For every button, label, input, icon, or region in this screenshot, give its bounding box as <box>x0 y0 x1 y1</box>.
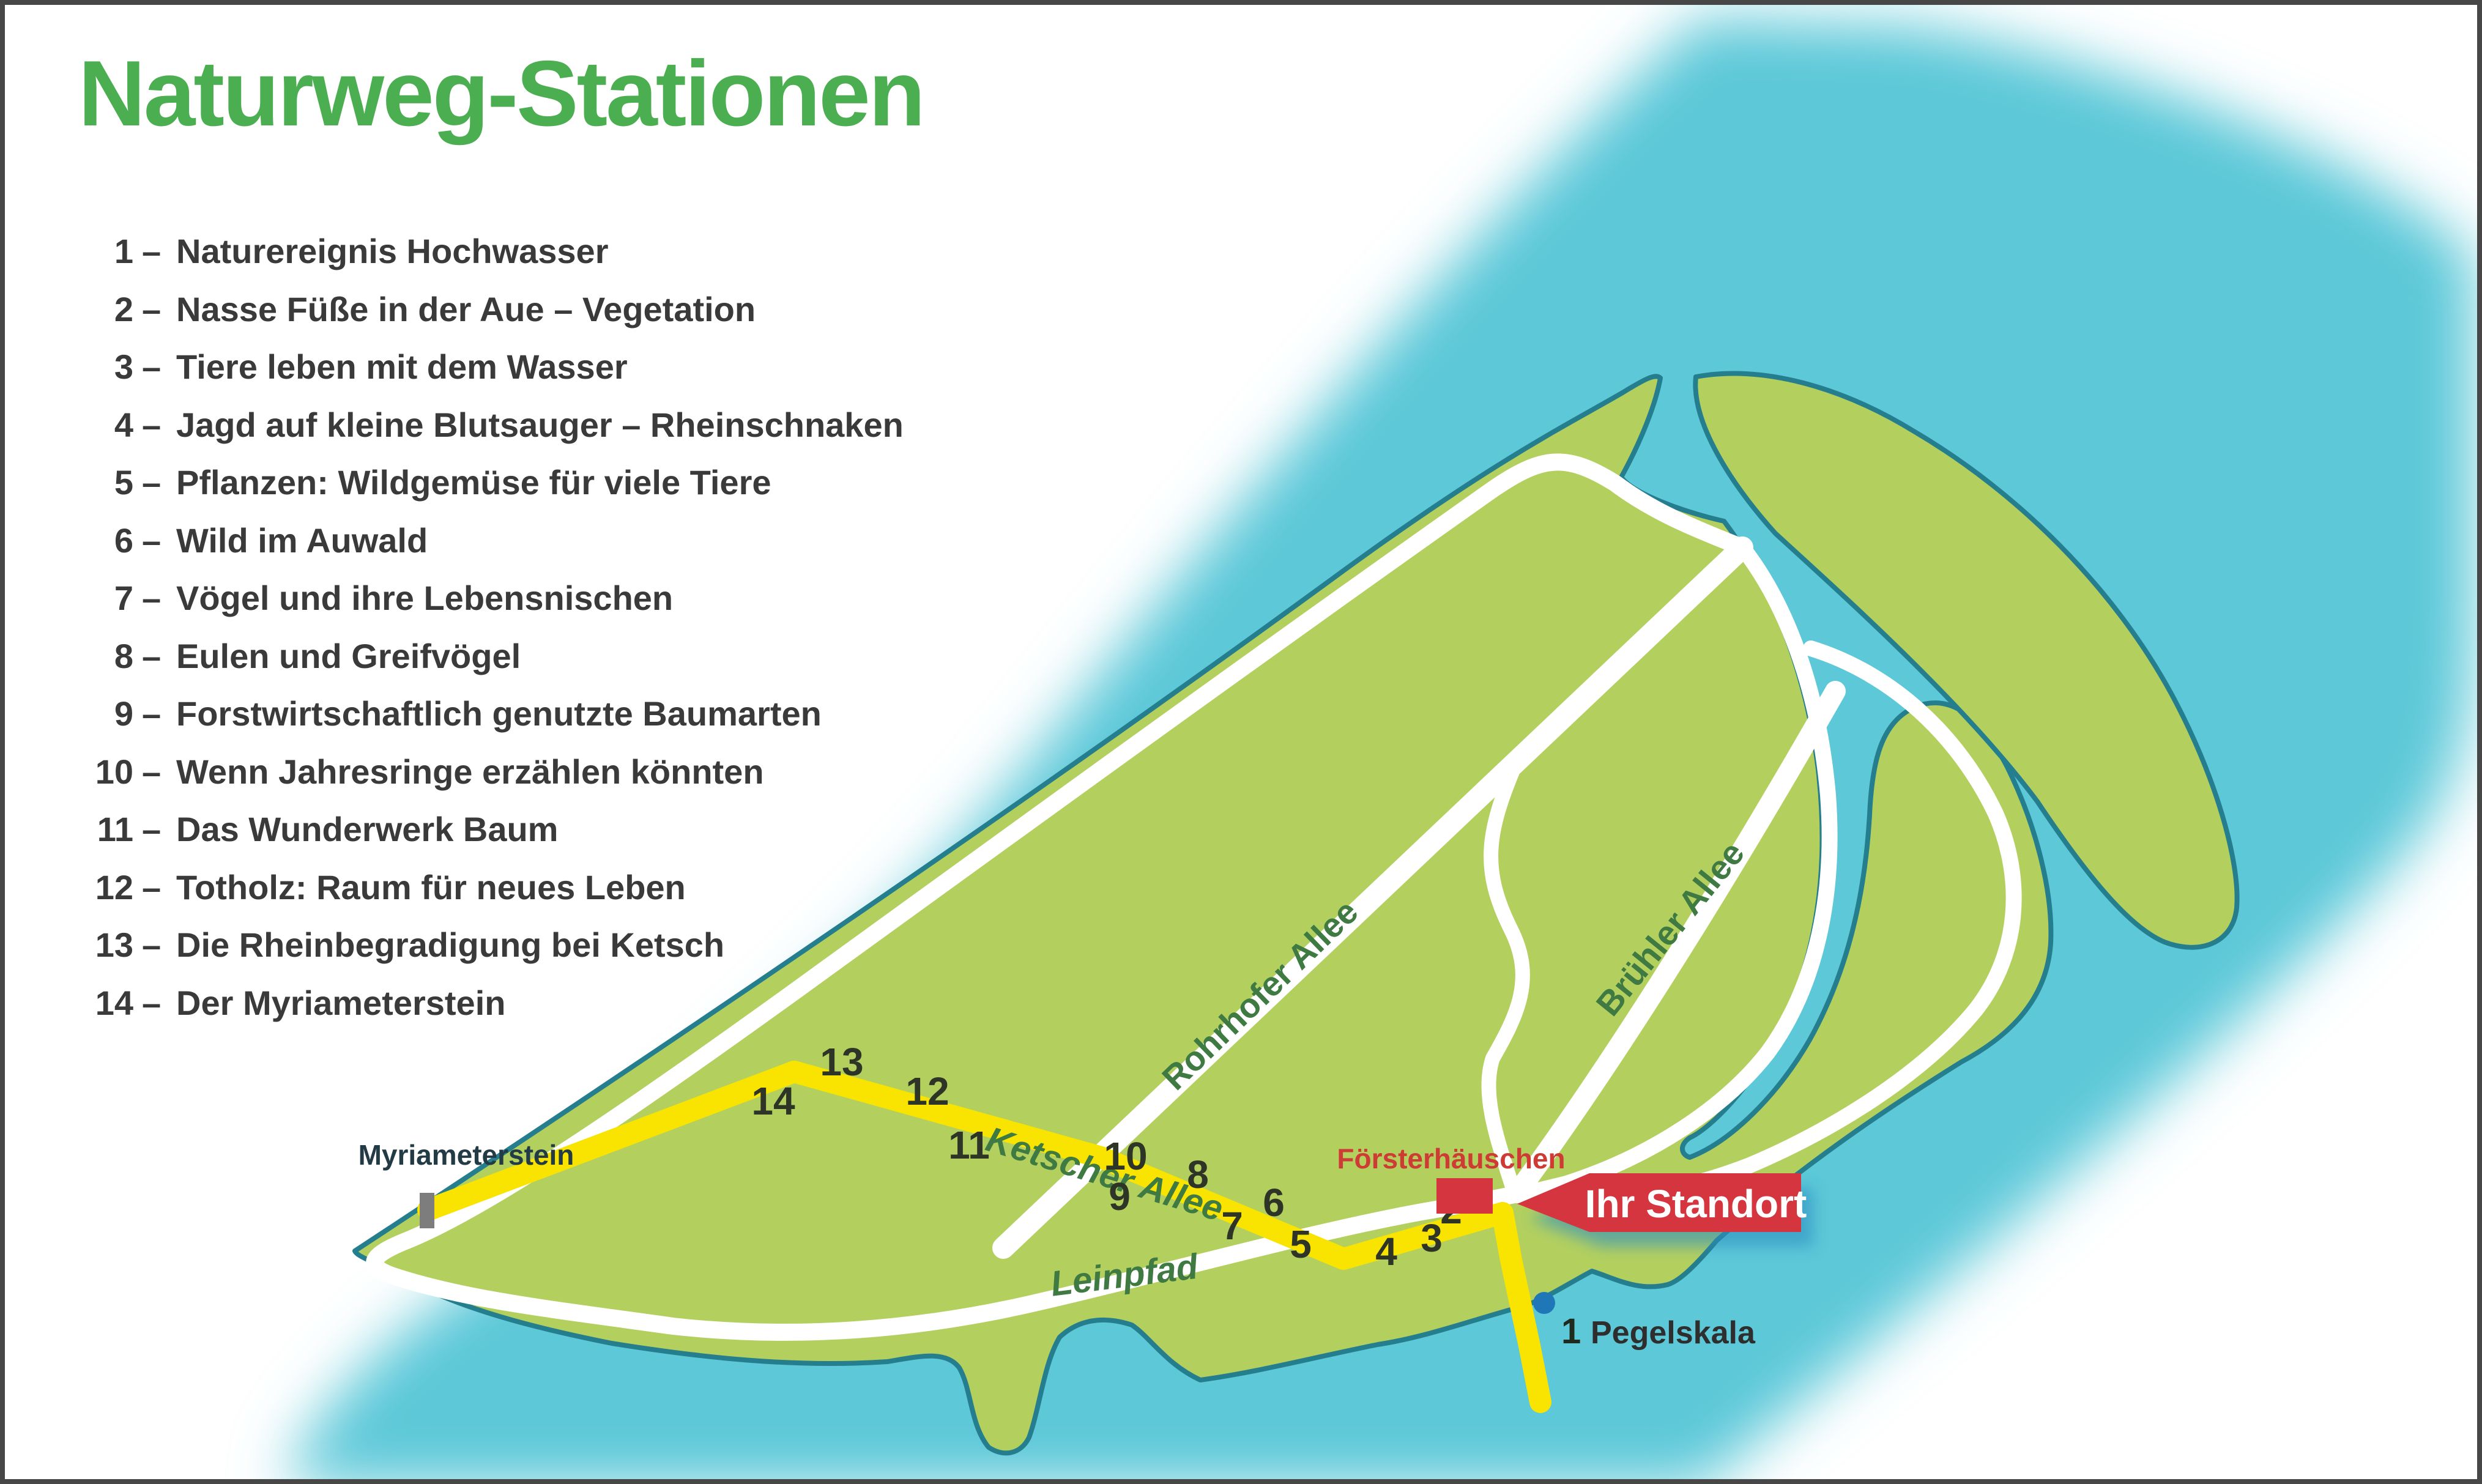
legend-dash-14: – <box>142 984 161 1022</box>
standort-banner-label: Ihr Standort <box>1585 1182 1807 1226</box>
station-4: 4 <box>1375 1230 1397 1274</box>
station-8: 8 <box>1187 1152 1209 1196</box>
legend-num-11: 11 <box>97 810 133 848</box>
station-3: 3 <box>1421 1216 1443 1260</box>
legend-dash-5: – <box>142 463 161 502</box>
legend-num-8: 8 <box>114 637 133 675</box>
legend-title-9: Forstwirtschaftlich genutzte Baumarten <box>176 694 822 733</box>
legend-dash-1: – <box>142 232 161 270</box>
legend-dash-6: – <box>142 521 161 560</box>
legend-dash-12: – <box>142 868 161 907</box>
trail-map-image: Myriameterstein Rohrhofer Allee Ketscher… <box>0 0 2482 1484</box>
legend-num-2: 2 <box>114 290 133 328</box>
legend-title-8: Eulen und Greifvögel <box>176 637 521 675</box>
station-14: 14 <box>751 1079 795 1123</box>
station-13: 13 <box>820 1040 863 1084</box>
legend-num-6: 6 <box>114 521 133 560</box>
legend-dash-2: – <box>142 290 161 328</box>
legend-title-14: Der Myriameterstein <box>176 984 505 1022</box>
legend-title-1: Naturereignis Hochwasser <box>176 232 608 270</box>
legend-num-13: 13 <box>95 926 133 964</box>
station-7: 7 <box>1221 1204 1243 1248</box>
station-5: 5 <box>1290 1222 1312 1266</box>
myriameterstein-marker <box>420 1193 434 1228</box>
legend-title-2: Nasse Füße in der Aue – Vegetation <box>176 290 756 328</box>
legend-dash-9: – <box>142 694 161 733</box>
legend-dash-4: – <box>142 406 161 444</box>
legend-dash-10: – <box>142 752 161 791</box>
legend-dash-8: – <box>142 637 161 675</box>
legend-dash-13: – <box>142 926 161 964</box>
legend-title-11: Das Wunderwerk Baum <box>176 810 558 848</box>
legend-title-5: Pflanzen: Wildgemüse für viele Tiere <box>176 463 771 502</box>
pegelskala-dot <box>1533 1292 1555 1314</box>
station-11: 11 <box>948 1123 990 1167</box>
legend-dash-11: – <box>142 810 161 848</box>
foersterhaeuschen-building <box>1436 1178 1493 1214</box>
legend-num-12: 12 <box>95 868 133 907</box>
legend-num-10: 10 <box>95 752 133 791</box>
page: Myriameterstein Rohrhofer Allee Ketscher… <box>0 0 2482 1484</box>
station-1: 1 <box>1561 1311 1581 1351</box>
legend-num-3: 3 <box>114 347 133 386</box>
legend-num-5: 5 <box>114 463 133 502</box>
legend-title-10: Wenn Jahresringe erzählen könnten <box>176 752 764 791</box>
legend-title-4: Jagd auf kleine Blutsauger – Rheinschnak… <box>176 406 904 444</box>
legend-num-14: 14 <box>95 984 133 1022</box>
legend-dash-3: – <box>142 347 161 386</box>
station-6: 6 <box>1263 1181 1285 1225</box>
foersterhaeuschen-label: Försterhäuschen <box>1337 1143 1565 1174</box>
legend-num-9: 9 <box>114 694 133 733</box>
legend-num-4: 4 <box>114 406 133 444</box>
station-12: 12 <box>905 1069 949 1113</box>
station-9: 9 <box>1109 1174 1131 1219</box>
legend-num-7: 7 <box>114 579 133 617</box>
page-title: Naturweg-Stationen <box>78 42 924 146</box>
legend-num-1: 1 <box>114 232 133 270</box>
legend-title-3: Tiere leben mit dem Wasser <box>176 347 628 386</box>
legend-title-13: Die Rheinbegradigung bei Ketsch <box>176 926 724 964</box>
legend-title-6: Wild im Auwald <box>176 521 428 560</box>
legend-title-7: Vögel und ihre Lebensnischen <box>176 579 673 617</box>
myriameterstein-label: Myriameterstein <box>359 1139 574 1171</box>
legend-title-12: Totholz: Raum für neues Leben <box>176 868 686 907</box>
legend-dash-7: – <box>142 579 161 617</box>
station-10: 10 <box>1104 1134 1147 1178</box>
pegelskala-label: Pegelskala <box>1591 1315 1756 1351</box>
